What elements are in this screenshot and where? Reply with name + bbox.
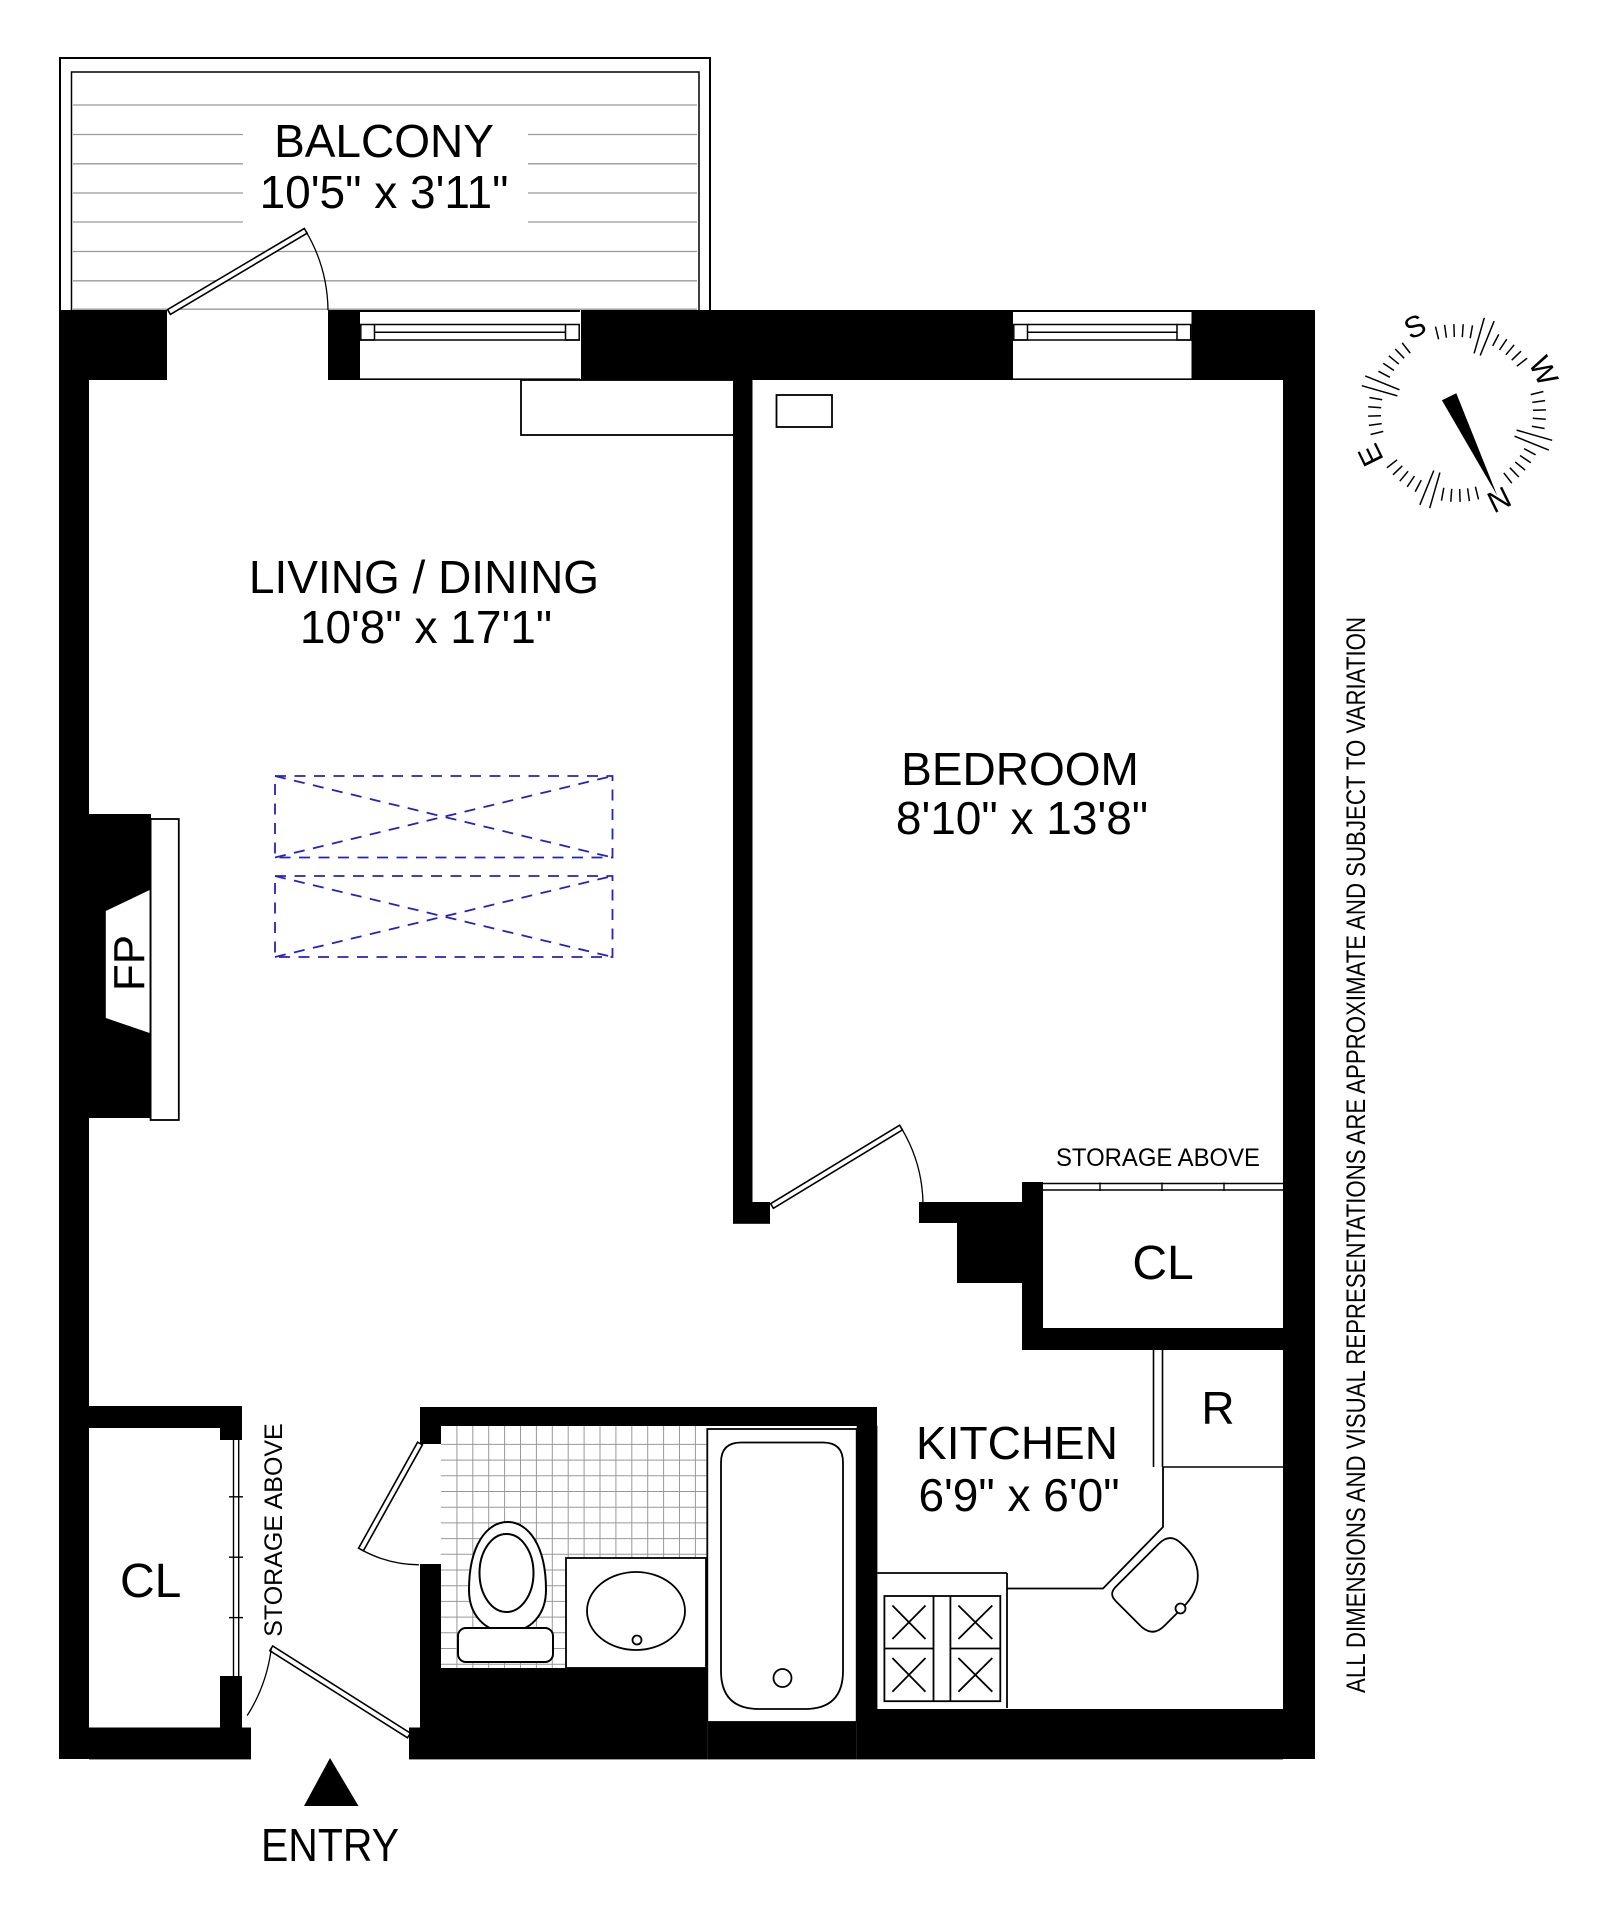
svg-text:BALCONY: BALCONY: [274, 115, 494, 167]
svg-text:STORAGE ABOVE: STORAGE ABOVE: [1056, 1144, 1260, 1172]
svg-text:R: R: [1201, 1382, 1234, 1434]
svg-text:10'8" x 17'1": 10'8" x 17'1": [300, 601, 552, 653]
svg-text:KITCHEN: KITCHEN: [916, 1417, 1118, 1469]
svg-text:10'5" x 3'11": 10'5" x 3'11": [260, 166, 509, 218]
svg-text:8'10" x 13'8": 8'10" x 13'8": [896, 792, 1148, 844]
svg-text:BEDROOM: BEDROOM: [901, 743, 1139, 795]
svg-text:CL: CL: [1132, 1237, 1193, 1290]
svg-text:LIVING / DINING: LIVING / DINING: [249, 551, 599, 603]
svg-text:STORAGE ABOVE: STORAGE ABOVE: [260, 1423, 288, 1637]
svg-text:ENTRY: ENTRY: [261, 1819, 399, 1871]
svg-text:ALL DIMENSIONS AND VISUAL REPR: ALL DIMENSIONS AND VISUAL REPRESENTATION…: [1341, 617, 1371, 1693]
svg-text:CL: CL: [120, 1555, 181, 1608]
svg-text:FP: FP: [105, 935, 154, 991]
svg-text:6'9" x 6'0": 6'9" x 6'0": [918, 1469, 1119, 1521]
